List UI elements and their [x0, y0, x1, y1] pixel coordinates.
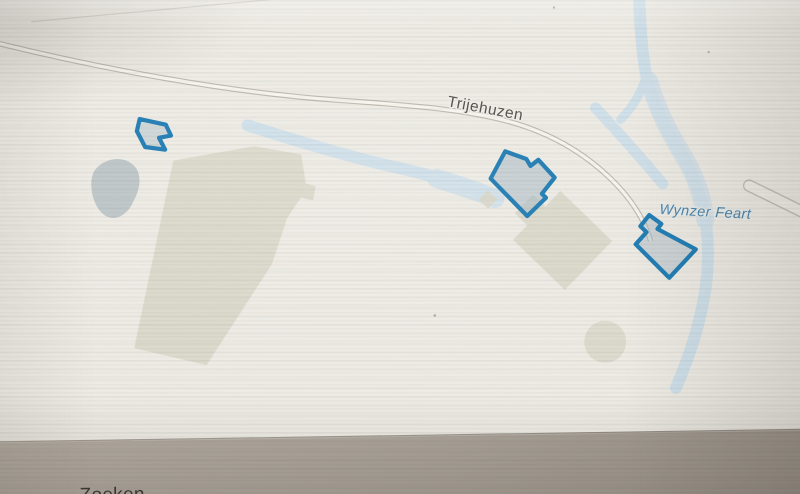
search-section-label[interactable]: Zoeken: [79, 484, 145, 494]
map-canvas[interactable]: Trijehuzen Wynzer Feart: [0, 0, 800, 461]
screen-photo: Trijehuzen Wynzer Feart Zoeken: [0, 0, 800, 494]
screen-content: Trijehuzen Wynzer Feart Zoeken: [0, 0, 800, 494]
